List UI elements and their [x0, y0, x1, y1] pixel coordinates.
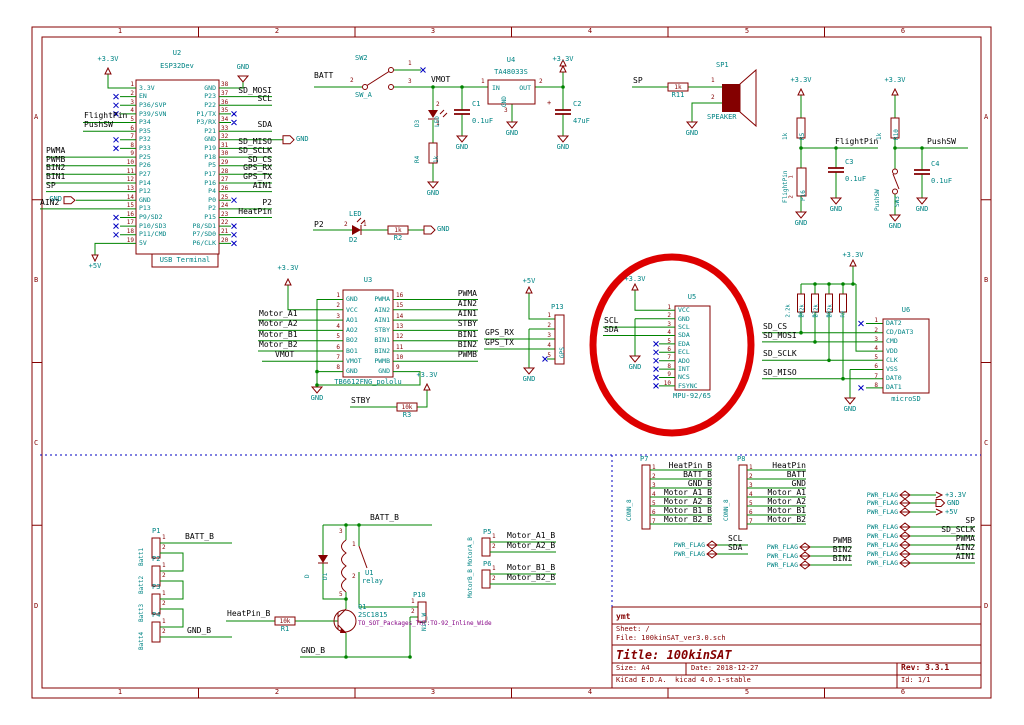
frame-row-c-left: C: [34, 440, 38, 447]
u4-ref: U4: [491, 57, 531, 64]
titleblock-id: Id: 1/1: [901, 677, 931, 684]
p8-value: CONN_8: [724, 499, 730, 521]
net-label-pwmb: PWMB: [437, 351, 477, 359]
power-label: +3.3V: [407, 372, 447, 379]
frame-row-a-left: A: [34, 114, 38, 121]
gnd-label: GND: [450, 144, 474, 151]
u3-left-pin-numbers: 1 2 3 4 5 6 7 8: [326, 291, 340, 373]
p1-pin2: 2: [162, 545, 166, 551]
c2-plus: +: [547, 100, 551, 107]
r7-value: 2.2k: [801, 304, 807, 317]
gnd-label: GND: [838, 406, 862, 413]
frame-col-4-bot: 4: [580, 689, 600, 696]
net-label-sd-sclk: SD_SCLK: [915, 526, 975, 534]
u6-pin-numbers: 1 2 3 4 5 6 7 8: [866, 316, 878, 390]
pwr-flag-label: PWR_FLAG: [850, 542, 898, 549]
p5-value: MotorA_B: [468, 537, 474, 566]
net-label-bin1: BIN1: [437, 331, 477, 339]
u3-ref: U3: [348, 277, 388, 284]
gnd-label: GND: [551, 144, 575, 151]
u1-pin5: 5: [339, 592, 343, 598]
pwr-flag-label: PWR_FLAG: [850, 509, 898, 516]
net-label-sda: SDA: [604, 326, 618, 334]
u4-pin3: 3: [504, 108, 508, 114]
net-label-pwma: PWMA: [46, 147, 65, 155]
gnd-label: GND: [623, 364, 647, 371]
frame-row-a-right: A: [984, 114, 988, 121]
r3-ref: R3: [395, 412, 419, 419]
r4-ref: R4: [415, 156, 421, 163]
sw2-ref: SW2: [355, 55, 368, 62]
sw2-pin2: 2: [350, 78, 354, 84]
pwr-flag-label: PWR_FLAG: [750, 553, 798, 560]
gnd-label: GND: [421, 190, 445, 197]
net-label-stby: STBY: [437, 320, 477, 328]
r11-value: 1k: [668, 85, 688, 91]
gnd-label: GND: [789, 220, 813, 227]
power-label: +5V: [75, 263, 115, 270]
net-label-sd-cs: SD_CS: [763, 323, 787, 331]
net-label-motor-b2: Motor_B2: [259, 341, 298, 349]
net-label-motor-a2-b: Motor_A2_B: [507, 542, 555, 550]
power-label: +3.3V: [268, 265, 308, 272]
annotation-circle: [593, 257, 751, 433]
net-label-gps-tx: GPS_TX: [485, 339, 514, 347]
p1-value: Batt1: [139, 548, 145, 566]
net-label-ain1: AIN1: [437, 310, 477, 318]
r5-ref: R5: [800, 133, 806, 140]
net-label-batt-b: BATT_B: [370, 514, 399, 522]
net-label-heatpin: HeatPin: [232, 208, 272, 216]
net-label-bin1: BIN1: [812, 555, 852, 563]
net-label-bin2: BIN2: [437, 341, 477, 349]
frame-col-3-top: 3: [423, 28, 443, 35]
speaker-section: [632, 70, 756, 128]
net-label-gnd-b: GND_B: [301, 647, 325, 655]
sw2-pin1: 1: [408, 61, 412, 67]
net-label-motor-b1-b: Motor_B1_B: [507, 564, 555, 572]
p2-pin1: 1: [162, 563, 166, 569]
net-label-sp: SP: [46, 182, 56, 190]
power-label: +5V: [514, 278, 544, 285]
pwr-flag-label: PWR_FLAG: [850, 533, 898, 540]
c1-ref: C1: [472, 101, 480, 108]
u1-pin1: 1: [352, 542, 356, 548]
net-label-motor-a2: Motor_A2: [259, 320, 298, 328]
frame-row-b-right: B: [984, 277, 988, 284]
c2-value: 47uF: [573, 118, 590, 125]
frame-col-3-bot: 3: [423, 689, 443, 696]
r8-value: 2.2k: [815, 304, 821, 317]
u1-ref: U1: [365, 570, 373, 577]
net-label-pushsw: PushSW: [927, 138, 956, 146]
net-label-bin2: BIN2: [812, 546, 852, 554]
sp1-pin2: 2: [711, 95, 715, 101]
u3-right-pin-numbers: 16 15 14 13 12 11 10 9: [396, 291, 403, 373]
p4-ref: P4: [152, 612, 160, 619]
sw3-value: PushSW: [875, 189, 881, 211]
power-label: +3.3V: [945, 492, 966, 499]
p4-value: Batt4: [139, 632, 145, 650]
r5-value: 1k: [783, 133, 789, 140]
r6-value: 2.2k: [787, 304, 793, 317]
titleblock-date: Date: 2018-12-27: [691, 665, 758, 672]
d1-value: D: [305, 574, 311, 578]
pwr-flag-label: PWR_FLAG: [850, 524, 898, 531]
frame-row-b-left: B: [34, 277, 38, 284]
frame-col-1-top: 1: [110, 28, 130, 35]
frame-row-c-right: C: [984, 440, 988, 447]
schematic-canvas[interactable]: 1 2 3 4 5 6 1 2 3 4 5 6 A B C D A B C D …: [0, 0, 1024, 725]
sw2-value: SW_A: [355, 92, 372, 99]
d3-value: LED: [435, 116, 441, 127]
u1-value: relay: [362, 578, 383, 585]
p3-value: Batt3: [139, 604, 145, 622]
frame-col-5-bot: 5: [737, 689, 757, 696]
p4-pin2: 2: [162, 629, 166, 635]
u4-pin-gnd: GND: [502, 96, 508, 107]
u1-pin3: 3: [339, 529, 343, 535]
r1-value: 10k: [275, 619, 295, 625]
u4-pin-out: OUT: [511, 85, 531, 92]
net-label-sda: SDA: [232, 121, 272, 129]
u2-left-pin-numbers: 1 2 3 4 5 6 7 8 9 10 11 12 13 14 15 16 1…: [120, 81, 134, 245]
u5-value: MPU-92/65: [652, 393, 732, 400]
gnd-label: GND: [910, 206, 934, 213]
p6-pin1: 1: [492, 566, 496, 572]
net-label-batt-b: BATT_B: [185, 533, 214, 541]
sp1-pin1: 1: [711, 78, 715, 84]
power-label: +3.3V: [781, 77, 821, 84]
frame-row-d-left: D: [34, 603, 38, 610]
power-label: +3.3V: [543, 56, 583, 63]
net-label-p2: P2: [314, 221, 324, 229]
net-label-vmot: VMOT: [431, 76, 450, 84]
u2-sub-label: USB Terminal: [152, 257, 218, 264]
titleblock-size: Size: A4: [616, 665, 650, 672]
net-label-vmot: VMOT: [275, 351, 294, 359]
titleblock-file: File: 100kinSAT_ver3.0.sch: [616, 635, 726, 642]
d2-ref: D2: [349, 237, 357, 244]
pwr-flag-label: PWR_FLAG: [850, 500, 898, 507]
net-label-ain1: AIN1: [915, 553, 975, 561]
titleblock-sheet: Sheet: /: [616, 626, 650, 633]
net-label-motor-a1: Motor_A1: [259, 310, 298, 318]
p5-pin1: 1: [492, 534, 496, 540]
net-label-ain2: AIN2: [40, 199, 59, 207]
net-label-scl: SCL: [232, 95, 272, 103]
gnd-label: GND: [517, 376, 541, 383]
frame-col-2-top: 2: [267, 28, 287, 35]
net-label-motor-b1: Motor_B1: [259, 331, 298, 339]
gnd-label: GND: [305, 395, 329, 402]
net-label-pwma: PWMA: [915, 535, 975, 543]
net-label-ain1: AIN1: [232, 182, 272, 190]
frame-col-4-top: 4: [580, 28, 600, 35]
net-label-flightpin: FlightPin: [835, 138, 878, 146]
pwr-flag-label: PWR_FLAG: [850, 492, 898, 499]
gnd-label: GND: [680, 130, 704, 137]
r1-ref: R1: [273, 626, 297, 633]
u4-pin1: 1: [481, 79, 485, 85]
r10-ref: R10: [894, 129, 900, 140]
p16-pin1: 1: [790, 175, 796, 178]
net-label-gps-rx: GPS_RX: [485, 329, 514, 337]
p5-ref: P5: [483, 529, 491, 536]
net-label-sd-sclk: SD_SCLK: [763, 350, 797, 358]
frame-col-6-top: 6: [893, 28, 913, 35]
r2-ref: R2: [386, 235, 410, 242]
p8-net-labels: HeatPin BATT GND Motor_A1 Motor_A2 Motor…: [750, 461, 806, 524]
u4-pin2: 2: [539, 79, 543, 85]
net-label-pwmb: PWMB: [812, 537, 852, 545]
pwr-flag-label: PWR_FLAG: [850, 551, 898, 558]
net-label-sp: SP: [915, 517, 975, 525]
u3-right-pin-names: PWMA AIN2 AIN1 STBY BIN1 BIN2 PWMB GND: [360, 294, 390, 376]
p7-net-labels: HeatPin_B BATT_B GND_B Motor_A1_B Motor_…: [656, 461, 712, 524]
net-label-batt: BATT: [314, 72, 333, 80]
pwr-flag-label: PWR_FLAG: [750, 562, 798, 569]
r9-ref: R9: [842, 311, 848, 318]
u6-value: microSD: [886, 396, 926, 403]
sp1-ref: SP1: [716, 62, 729, 69]
p10-pin1: 1: [411, 599, 415, 605]
net-label-motor-b2-b: Motor_B2_B: [507, 574, 555, 582]
r3-value: 10k: [397, 405, 417, 411]
p1-pin1: 1: [162, 535, 166, 541]
d1-ref: D1: [323, 573, 329, 580]
d2-value: LED: [349, 211, 362, 218]
sp1-value: SPEAKER: [707, 114, 737, 121]
u4-pin-in: IN: [492, 85, 500, 92]
p4-pin1: 1: [162, 619, 166, 625]
power-label: +3.3V: [88, 56, 128, 63]
p8-ref: P8: [737, 456, 745, 463]
titleblock-kicad: KiCad E.D.A. kicad 4.0.1-stable: [616, 677, 751, 684]
p7-ref: P7: [640, 456, 648, 463]
p13-ref: P13: [551, 304, 564, 311]
gnd-label: GND: [947, 500, 960, 507]
u6-ref: U6: [886, 307, 926, 314]
net-label-sp: SP: [633, 77, 643, 85]
gnd-label: GND: [883, 223, 907, 230]
p16-pin2: 2: [790, 195, 796, 198]
u6-pin-names: DAT2 CD/DAT3 CMD VDD CLK VSS DAT0 DAT1: [886, 319, 913, 393]
r10-value: 1k: [877, 133, 883, 140]
p2-value: Batt2: [139, 576, 145, 594]
frame-col-6-bot: 6: [893, 689, 913, 696]
p13-pin-numbers: 1 2 3 4 5: [538, 311, 551, 361]
p3-pin1: 1: [162, 591, 166, 597]
u5-pin-numbers: 1 2 3 4 5 6 7 8 9 10: [655, 304, 671, 388]
c3-ref: C3: [845, 159, 853, 166]
gnd-label: GND: [231, 64, 255, 71]
gnd-label: GND: [437, 226, 450, 233]
heater-relay-section: [226, 525, 432, 657]
power-label: +3.3V: [833, 252, 873, 259]
net-label-pushsw: PushSW: [84, 121, 113, 129]
d2-pin1: 1: [363, 222, 367, 228]
net-label-sd-sclk: SD_SCLK: [232, 147, 272, 155]
frame-col-1-bot: 1: [110, 689, 130, 696]
u2-ref: U2: [157, 50, 197, 57]
net-label-sd-mosi: SD_MOSI: [763, 332, 797, 340]
p1-ref: P1: [152, 528, 160, 535]
pwr-flag-label: PWR_FLAG: [657, 551, 705, 558]
net-label-p2: P2: [232, 199, 272, 207]
pwr-flag-label: PWR_FLAG: [750, 544, 798, 551]
d3-ref: D3: [415, 120, 421, 127]
c3-value: 0.1uF: [845, 176, 866, 183]
frame-col-2-bot: 2: [267, 689, 287, 696]
q1-value: 2SC1815: [358, 612, 388, 619]
net-label-scl: SCL: [728, 535, 742, 543]
titleblock-title: Title: 100kinSAT: [616, 649, 732, 661]
u2-value: ESP32Dev: [157, 63, 197, 70]
frame-row-d-right: D: [984, 603, 988, 610]
frame-col-5-top: 5: [737, 28, 757, 35]
p5-pin2: 2: [492, 544, 496, 550]
q1-ref: Q1: [358, 604, 366, 611]
titleblock-comment: ymt: [616, 613, 630, 621]
pwr-flag-label: PWR_FLAG: [850, 560, 898, 567]
r2-value: 1k: [388, 228, 408, 234]
p13-value: GPS: [560, 347, 566, 358]
sw2-pin3: 3: [408, 79, 412, 85]
r4-value: 1k: [434, 156, 440, 163]
p10-value: NiC_W: [422, 613, 428, 631]
p3-ref: P3: [152, 584, 160, 591]
net-label-motor-a1-b: Motor_A1_B: [507, 532, 555, 540]
u4-value: TA48033S: [486, 69, 536, 76]
gnd-label: GND: [500, 130, 524, 137]
net-label-gps-tx: GPS_TX: [232, 173, 272, 181]
r9-value: 2.2k: [829, 304, 835, 317]
p2-ref: P2: [152, 556, 160, 563]
d3-pin2: 2: [436, 102, 440, 108]
p16-ref: P16: [801, 190, 807, 201]
power-label: +5V: [945, 509, 958, 516]
u5-ref: U5: [672, 294, 712, 301]
u5-pin-names: VCC GND SCL SDA EDA ECL ADO INT NCS FSYN…: [678, 306, 698, 390]
power-label: +3.3V: [615, 276, 655, 283]
net-label-gnd-b: GND_B: [187, 627, 211, 635]
c4-value: 0.1uF: [931, 178, 952, 185]
flightpin-pushsw-section: [796, 89, 968, 221]
net-label-ain2: AIN2: [915, 544, 975, 552]
u2-right-pin-names: GND P23 P22 P1/TX P3/RX P21 GND P19 P18 …: [176, 84, 216, 248]
p2-pin2: 2: [162, 573, 166, 579]
gnd-label: GND: [296, 136, 309, 143]
p6-value: MotorB_B: [468, 569, 474, 598]
u1-pin2: 2: [352, 574, 356, 580]
u2-right-pin-numbers: 38 37 36 35 34 33 32 31 30 29 28 27 26 2…: [221, 81, 228, 245]
c1-value: 0.1uF: [472, 118, 493, 125]
c4-ref: C4: [931, 161, 939, 168]
net-label-sda: SDA: [728, 544, 742, 552]
net-label-stby: STBY: [351, 397, 370, 405]
gnd-label: GND: [824, 206, 848, 213]
net-label-sd-miso: SD_MISO: [763, 369, 797, 377]
u2-left-pin-names: 3.3V EN P36/SVP P39/SVN P34 P35 P32 P33 …: [139, 84, 166, 248]
p6-ref: P6: [483, 561, 491, 568]
p6-pin2: 2: [492, 576, 496, 582]
p7-value: CONN_8: [627, 499, 633, 521]
net-label-ain2: AIN2: [437, 300, 477, 308]
sw3-ref: SW3: [895, 196, 901, 207]
c2-ref: C2: [573, 101, 581, 108]
d2-pin2: 2: [344, 222, 348, 228]
r11-ref: R11: [666, 92, 690, 99]
heatpin-led-section: [313, 218, 435, 235]
titleblock-rev: Rev: 3.3.1: [901, 664, 949, 672]
pwr-flag-label: PWR_FLAG: [657, 542, 705, 549]
u3-value: TB6612FNG_pololu: [308, 379, 428, 386]
p10-pin2: 2: [411, 609, 415, 615]
net-label-flightpin: FlightPin: [84, 112, 127, 120]
p3-pin2: 2: [162, 601, 166, 607]
net-label-scl: SCL: [604, 317, 618, 325]
net-label-heatpin-b: HeatPin_B: [227, 610, 270, 618]
net-label-pwma: PWMA: [437, 290, 477, 298]
power-label: +3.3V: [875, 77, 915, 84]
net-label-bin1: BIN1: [46, 173, 65, 181]
